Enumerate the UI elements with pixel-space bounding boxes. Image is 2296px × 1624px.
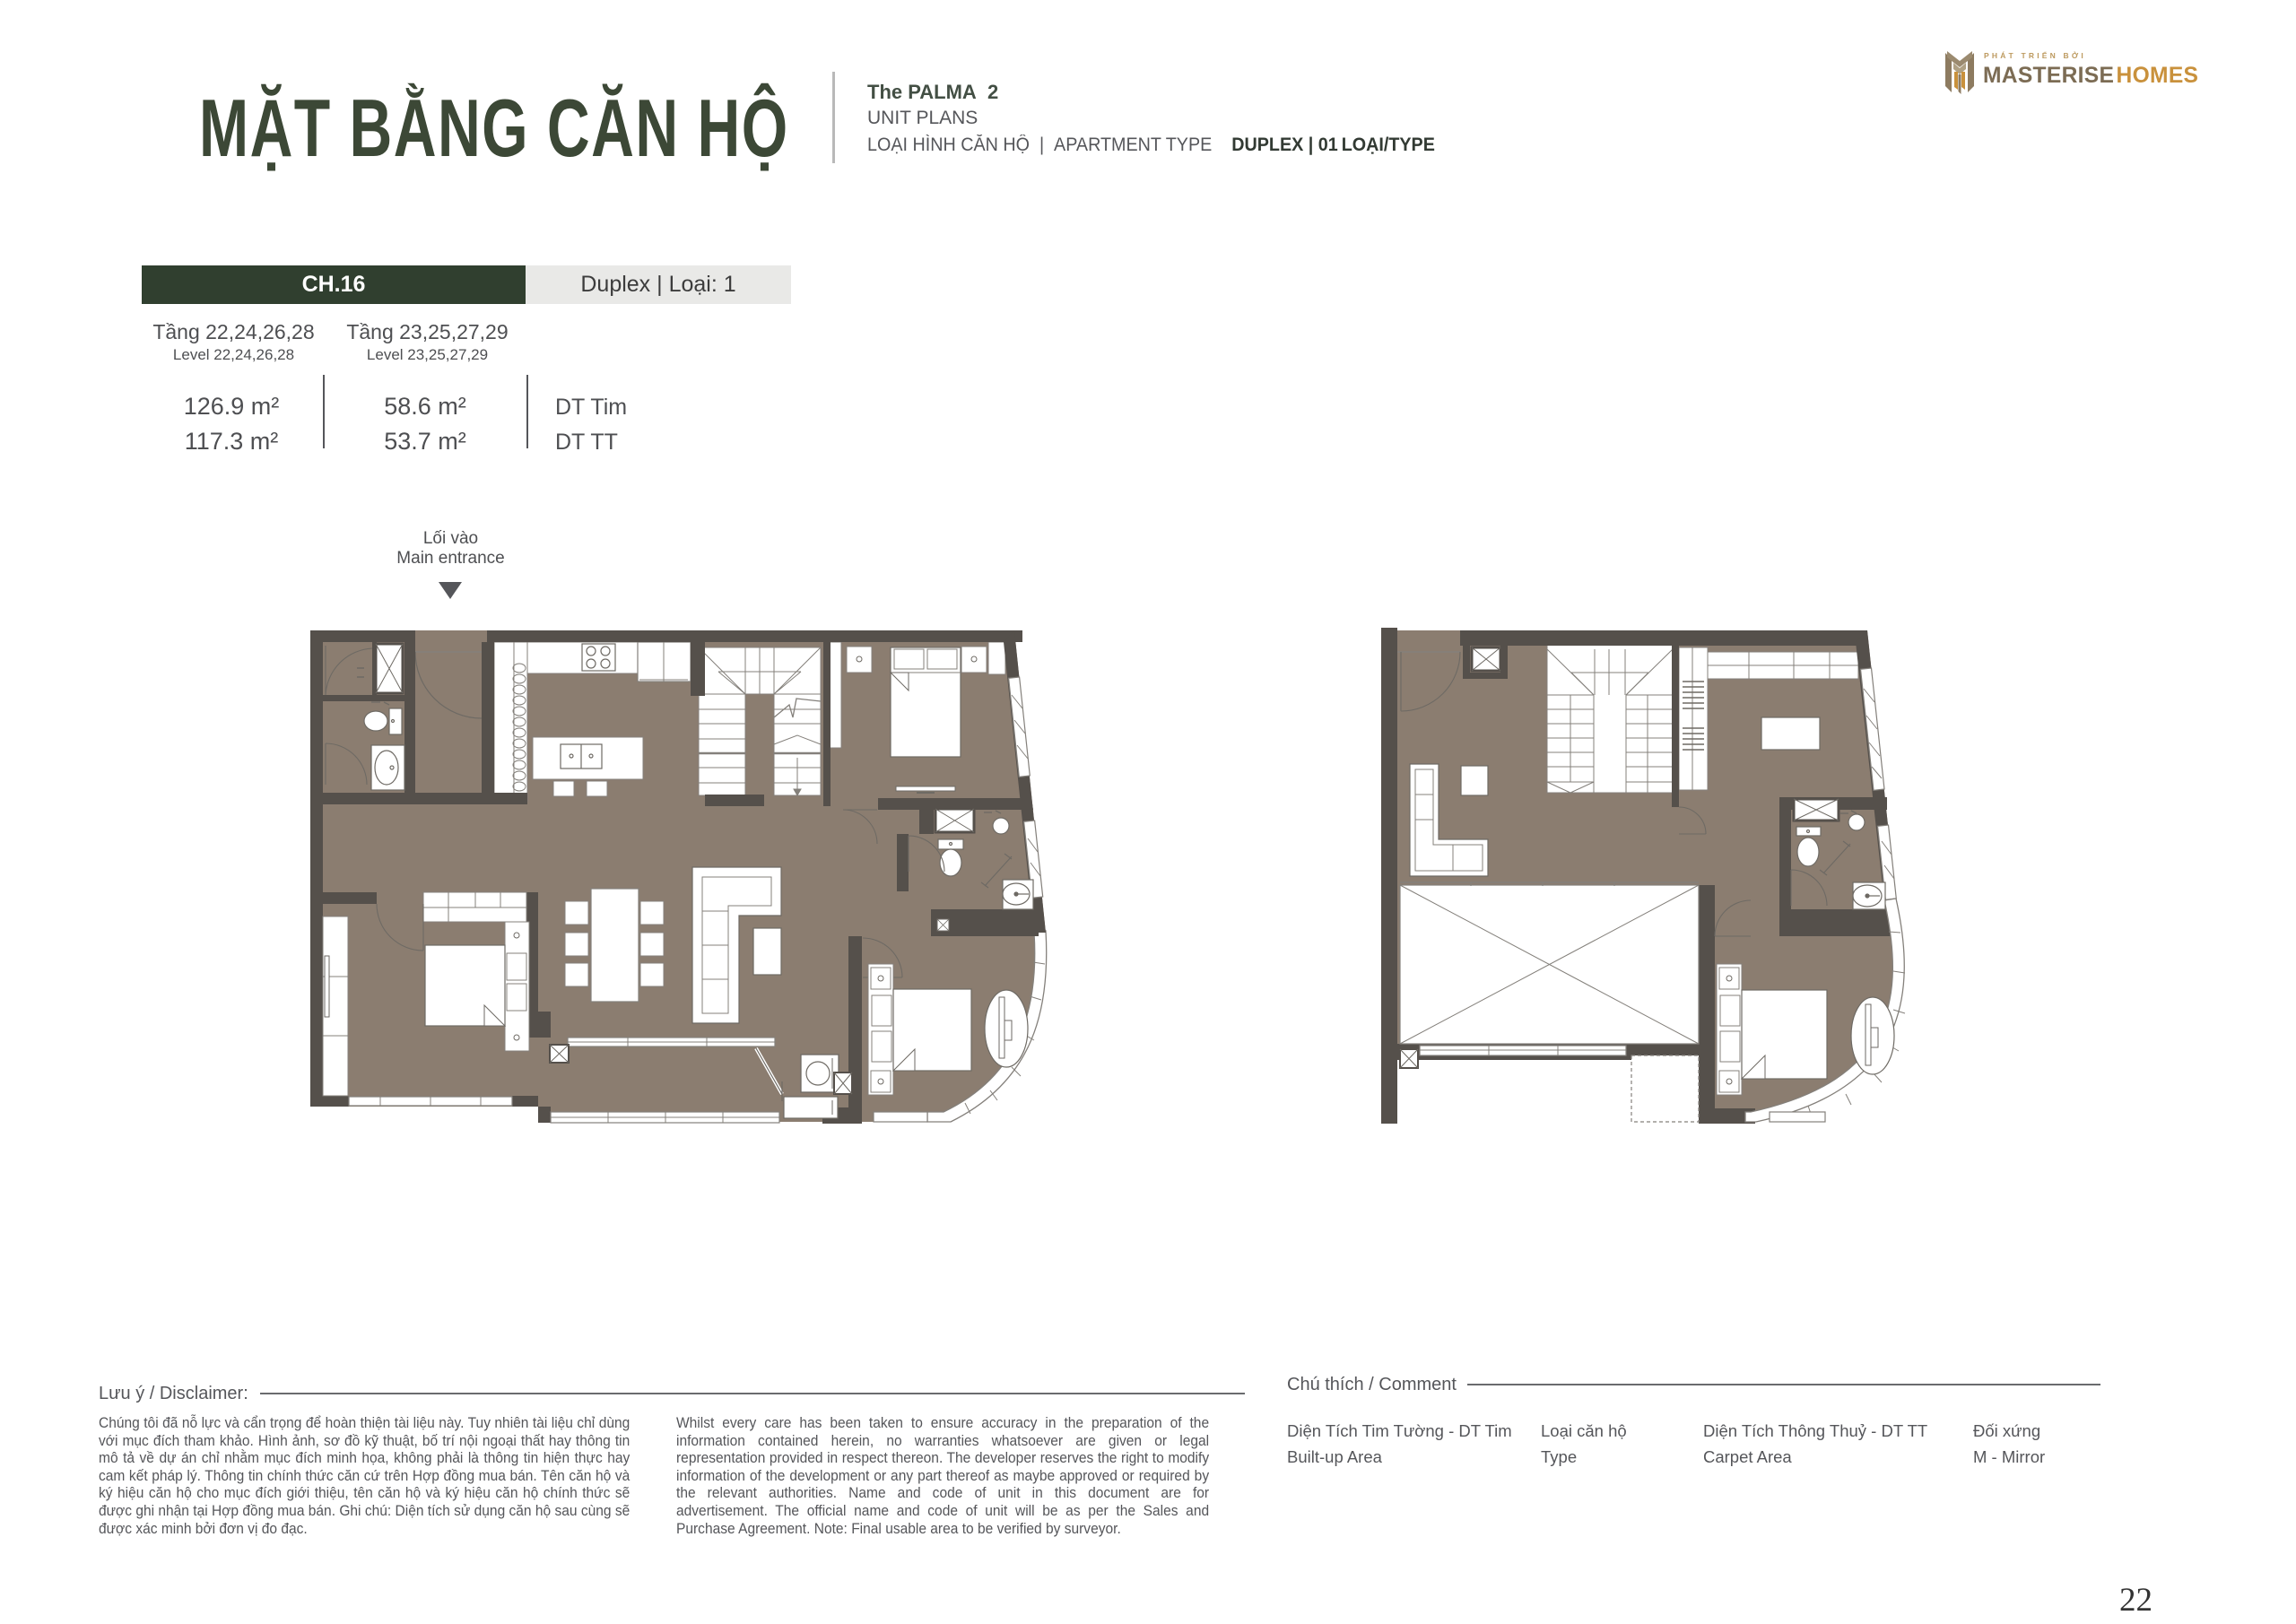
svg-text:MASTERISE HOMES: MASTERISE HOMES	[1983, 64, 2198, 88]
svg-text:PHÁT TRIỂN BỞI: PHÁT TRIỂN BỞI	[1984, 50, 2086, 60]
